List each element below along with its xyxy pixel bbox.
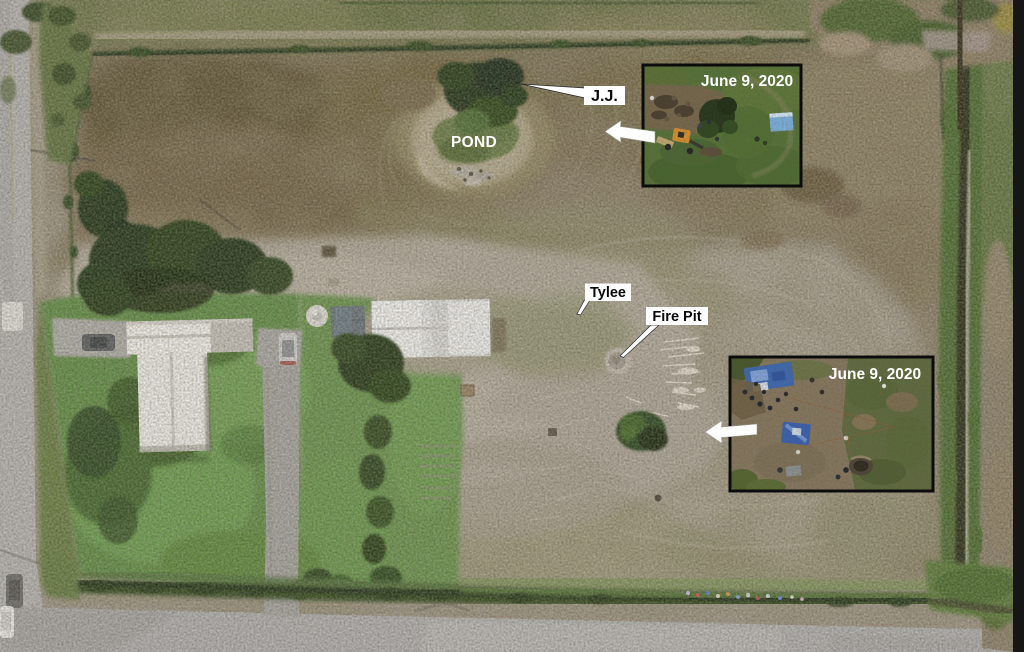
svg-text:POND: POND <box>451 134 497 151</box>
svg-text:J.J.: J.J. <box>591 88 618 105</box>
svg-text:June 9, 2020: June 9, 2020 <box>829 366 921 383</box>
svg-text:June 9, 2020: June 9, 2020 <box>701 73 793 90</box>
svg-text:Fire Pit: Fire Pit <box>652 309 701 325</box>
svg-text:Tylee: Tylee <box>590 285 626 301</box>
